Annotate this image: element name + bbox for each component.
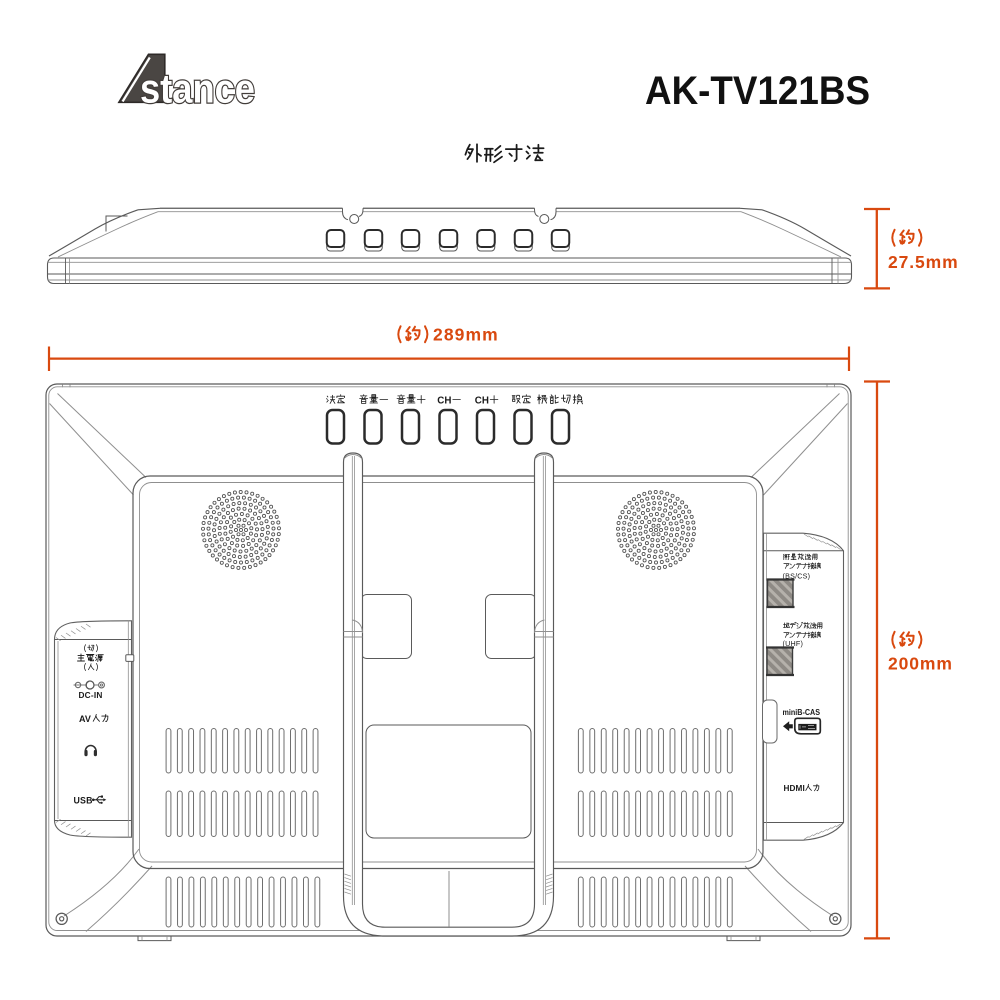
svg-text:USB: USB	[74, 796, 93, 806]
svg-text:miniB-CAS: miniB-CAS	[783, 707, 821, 717]
svg-text:AV: AV	[79, 714, 91, 724]
svg-text:CH: CH	[475, 396, 489, 407]
svg-text:CH: CH	[437, 396, 451, 407]
svg-text:27.5mm: 27.5mm	[888, 252, 959, 272]
svg-text:stance: stance	[140, 65, 255, 111]
svg-text:HDMI: HDMI	[784, 784, 805, 793]
svg-text:DC-IN: DC-IN	[78, 690, 102, 700]
svg-text:200mm: 200mm	[888, 654, 953, 674]
svg-text:289mm: 289mm	[433, 325, 499, 345]
svg-text:AK-TV121BS: AK-TV121BS	[645, 69, 870, 113]
